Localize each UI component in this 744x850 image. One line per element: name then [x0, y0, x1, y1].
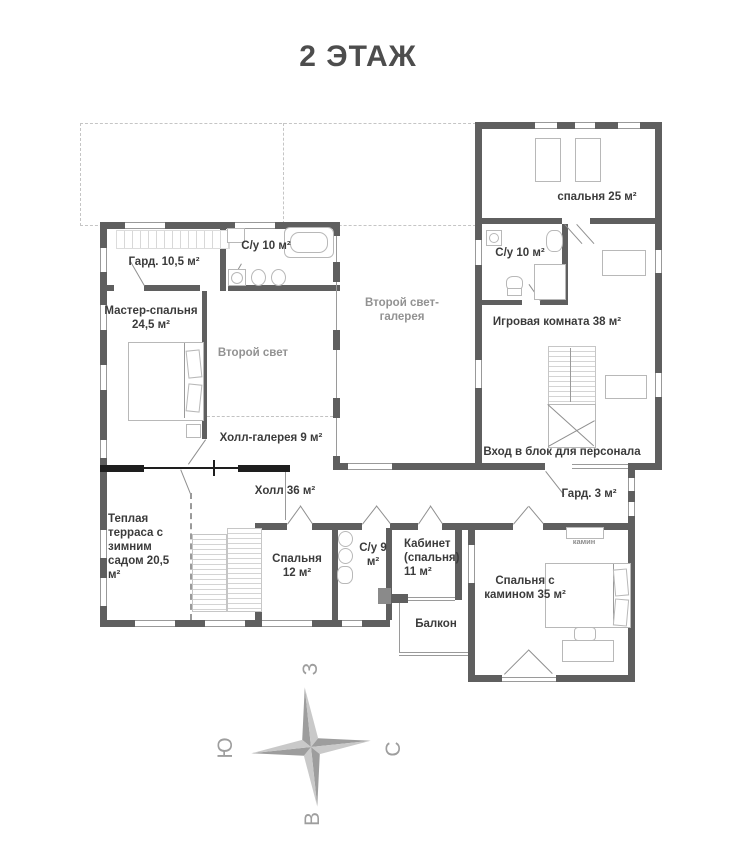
- roof-outline: [80, 123, 476, 226]
- room-label-hall-gallery: Холл-галерея 9 м²: [207, 431, 335, 445]
- wall: [468, 675, 502, 682]
- window: [100, 440, 107, 458]
- window: [618, 122, 640, 129]
- room-label-wardrobe-105: Гард. 10,5 м²: [116, 255, 212, 269]
- wall: [184, 343, 185, 418]
- door-swing: [188, 439, 206, 464]
- wall: [408, 597, 455, 598]
- washing-machine: [231, 272, 243, 284]
- window: [125, 222, 165, 229]
- wall: [655, 122, 662, 470]
- wall: [482, 218, 562, 224]
- chair: [574, 627, 596, 641]
- door-swing: [528, 506, 544, 524]
- door-swing: [513, 506, 529, 524]
- wall: [213, 460, 215, 476]
- pillow: [186, 383, 203, 412]
- desk: [602, 250, 646, 276]
- pillow: [186, 349, 203, 378]
- window: [628, 478, 635, 491]
- staircase: [548, 346, 596, 406]
- room-label-balcony: Балкон: [406, 617, 466, 631]
- washing-machine: [378, 588, 391, 604]
- room-label-bath-10-left: С/у 10 м²: [240, 239, 292, 253]
- wall: [502, 677, 556, 678]
- washing-machine: [489, 233, 499, 243]
- desk: [562, 640, 614, 662]
- room-label-second-light-gallery: Второй свет-галерея: [352, 296, 452, 324]
- wardrobe-shelving: [116, 230, 230, 249]
- wall: [442, 523, 513, 530]
- gallery-open-edge: [207, 416, 333, 418]
- pillow: [613, 568, 629, 596]
- window: [262, 620, 312, 627]
- wall: [333, 222, 340, 236]
- wall: [100, 285, 114, 291]
- wall: [399, 655, 472, 656]
- staircase: [227, 528, 262, 612]
- window: [205, 620, 245, 627]
- wall: [333, 262, 340, 282]
- room-label-wardrobe-3: Гард. 3 м²: [553, 487, 625, 501]
- room-label-warm-terrace: Теплая терраса с зимним садом 20,5 м²: [108, 512, 174, 582]
- bathtub: [290, 232, 328, 253]
- window: [535, 122, 557, 129]
- room-label-master-bedroom: Мастер-спальня 24,5 м²: [102, 304, 200, 332]
- label-staff-entrance: Вход в блок для персонала: [478, 445, 646, 459]
- window: [655, 250, 662, 273]
- compass-letter-south: Ю: [214, 737, 238, 758]
- floor-plan: 2 ЭТАЖ: [0, 0, 744, 850]
- room-label-second-light: Второй свет: [203, 346, 303, 360]
- staircase: [192, 534, 227, 612]
- wall: [399, 652, 472, 653]
- wall: [238, 465, 290, 472]
- room-label-bedroom-12: Спальня 12 м²: [266, 552, 328, 580]
- desk: [605, 375, 647, 399]
- room-label-game-room: Игровая комната 38 м²: [482, 315, 632, 329]
- window: [100, 365, 107, 390]
- wall: [570, 348, 571, 402]
- wall: [590, 218, 662, 224]
- wall: [475, 122, 482, 470]
- door-swing: [376, 505, 391, 524]
- sink: [338, 531, 353, 547]
- compass-letter-north: С: [382, 741, 406, 756]
- bed: [535, 138, 561, 182]
- window: [348, 463, 392, 470]
- wall: [475, 463, 545, 470]
- window: [475, 240, 482, 265]
- window: [475, 360, 482, 388]
- shower: [534, 264, 566, 300]
- room-label-bedroom-fireplace: Спальня с камином 35 м²: [482, 574, 568, 602]
- page-title: 2 ЭТАЖ: [258, 40, 458, 74]
- door-swing: [287, 506, 301, 524]
- wall: [390, 523, 418, 530]
- window: [100, 530, 107, 558]
- window: [100, 248, 107, 272]
- window: [342, 620, 362, 627]
- window: [655, 373, 662, 397]
- toilet: [337, 566, 353, 584]
- wall: [572, 468, 628, 469]
- roof-outline: [283, 123, 285, 224]
- compass-rose-icon: [246, 682, 376, 812]
- compass-letter-west: З: [299, 663, 323, 676]
- room-label-bedroom-25: спальня 25 м²: [538, 190, 656, 204]
- wall: [333, 330, 340, 350]
- wall: [408, 600, 455, 601]
- bed: [575, 138, 601, 182]
- wall: [392, 594, 408, 603]
- room-label-cabinet-11: Кабинет (спальня) 11 м²: [404, 537, 470, 579]
- wall: [144, 467, 238, 469]
- wall: [572, 464, 628, 465]
- window: [135, 620, 175, 627]
- wall: [100, 465, 144, 472]
- wall: [100, 222, 107, 627]
- sink: [271, 269, 286, 286]
- window: [100, 578, 107, 606]
- nightstand: [186, 424, 201, 438]
- door-swing: [418, 506, 431, 525]
- wall: [556, 675, 635, 682]
- room-label-hall-36: Холл 36 м²: [245, 484, 325, 498]
- sink: [546, 230, 563, 252]
- wall: [333, 398, 340, 418]
- wall: [540, 300, 568, 305]
- compass-letter-east: В: [301, 812, 325, 826]
- door-swing: [180, 470, 191, 494]
- door-swing: [430, 505, 443, 524]
- window: [628, 502, 635, 516]
- wall: [399, 603, 400, 653]
- pillow: [613, 598, 629, 626]
- window: [575, 122, 595, 129]
- door-swing: [504, 650, 529, 675]
- room-label-bath-10-right: С/у 10 м²: [494, 246, 546, 260]
- wall: [144, 285, 200, 291]
- wall: [628, 463, 662, 470]
- wall: [502, 681, 556, 682]
- wall: [482, 300, 522, 305]
- room-label-bath-9: С/у 9 м²: [354, 541, 392, 569]
- sink: [251, 269, 266, 286]
- door-swing: [528, 649, 553, 674]
- sink: [338, 548, 353, 564]
- toilet: [507, 288, 522, 296]
- door-swing: [362, 506, 377, 525]
- label-fireplace: камин: [564, 537, 604, 546]
- door-swing: [300, 505, 313, 524]
